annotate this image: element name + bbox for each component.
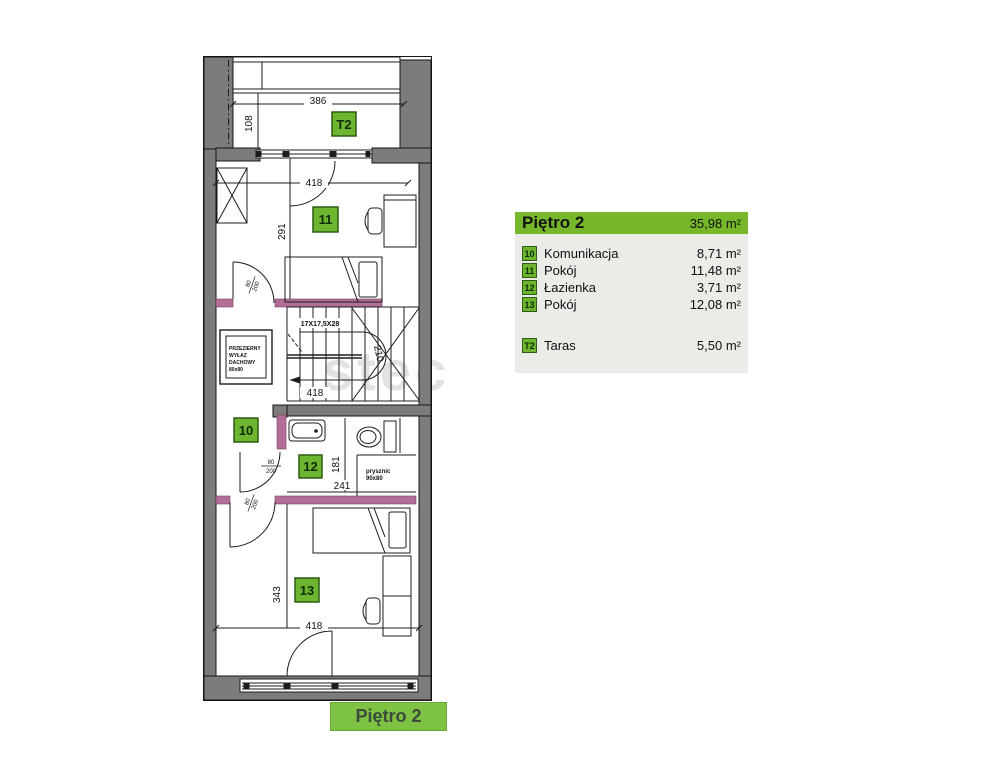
toilet-bowl <box>357 427 381 447</box>
partition-room11-left <box>216 299 233 307</box>
floor-plan: 386 108 <box>0 0 989 765</box>
window-mullion <box>408 683 413 688</box>
wall-terrace-divider-right <box>372 148 431 163</box>
room-badges: T2 11 10 12 13 <box>234 112 356 602</box>
chair-room13 <box>363 598 380 624</box>
legend-row-room11: 11 Pokój 11,48 m² <box>522 262 741 279</box>
bottom-window <box>240 679 418 692</box>
window-mullion <box>283 152 289 157</box>
wall-top-right-block <box>400 60 431 150</box>
toilet <box>357 418 400 453</box>
legend-header: Piętro 2 35,98 m² <box>515 212 748 234</box>
door-height-label: 200 <box>251 498 260 510</box>
bed-frame <box>313 508 410 553</box>
bed-frame <box>285 257 382 302</box>
legend-name-12: Łazienka <box>544 280 596 295</box>
badge-room13-label: 13 <box>300 583 314 598</box>
badge-room12-label: 12 <box>303 459 317 474</box>
legend-name-11: Pokój <box>544 263 577 278</box>
bed-room11 <box>285 257 382 302</box>
shower-text-1: prysznic <box>366 469 391 475</box>
legend-row-room10: 10 Komunikacja 8,71 m² <box>522 245 741 262</box>
door-room11-swing <box>233 262 274 303</box>
sink <box>289 420 325 441</box>
roof-hatch-text-2: WYŁAZ <box>229 353 247 359</box>
door-label-bath: 80 200 <box>261 460 281 475</box>
balcony-door-swing <box>287 631 332 676</box>
door-width-label: 80 <box>268 460 275 466</box>
partition-bath-vertical <box>277 415 286 449</box>
legend-badge-13: 13 <box>522 297 537 312</box>
window-mullion <box>332 683 338 688</box>
door-label-room11: 80 200 <box>243 274 262 296</box>
desk-room11 <box>384 195 416 247</box>
partition-room13-right <box>275 496 416 504</box>
legend-row-room12: 12 Łazienka 3,71 m² <box>522 279 741 296</box>
partition-room13-left <box>216 496 230 504</box>
door-height-label: 200 <box>266 469 277 475</box>
legend-title: Piętro 2 <box>522 213 584 233</box>
toilet-cistern <box>384 421 396 452</box>
bed-pillow <box>359 262 377 297</box>
sink-drain <box>315 430 318 433</box>
legend-badge-11: 11 <box>522 263 537 278</box>
legend-name-t2: Taras <box>544 338 576 353</box>
badge-room11-label: 11 <box>319 212 333 227</box>
legend-area-13: 12,08 m² <box>690 297 741 312</box>
badge-room10-label: 10 <box>239 423 253 438</box>
bed-room13 <box>313 508 410 553</box>
stairs-spec-label: 17X17,5X28 <box>301 321 340 328</box>
chair-seat <box>366 598 380 624</box>
door-label-room13: 80 200 <box>242 492 261 514</box>
window-mullion <box>284 683 290 688</box>
door-height-label: 200 <box>252 280 261 292</box>
stairs-height-label: 210 <box>371 344 385 363</box>
legend-area-12: 3,71 m² <box>697 280 741 295</box>
wall-terrace-divider-left <box>216 148 260 161</box>
window-mullion <box>257 152 261 157</box>
desk-top <box>384 195 416 247</box>
window-mullion <box>330 152 336 157</box>
chair-seat <box>368 208 382 234</box>
legend-badge-12: 12 <box>522 280 537 295</box>
legend-area-10: 8,71 m² <box>697 246 741 261</box>
desk-room13 <box>383 556 411 636</box>
window-mullion <box>366 152 370 157</box>
bed-fold <box>342 257 358 302</box>
toilet-seat <box>360 431 376 444</box>
stair-walkline-arrow <box>291 377 300 383</box>
roof-hatch-text-4: 80x80 <box>229 367 243 373</box>
shower-text-2: 90x80 <box>366 476 383 482</box>
dim-room11-width: 418 <box>306 178 323 189</box>
badge-terrace-label: T2 <box>336 117 351 132</box>
window-mullion <box>244 683 249 688</box>
partition-room11-right <box>275 299 382 307</box>
legend-row-terrace: T2 Taras 5,50 m² <box>522 337 741 354</box>
stairs-run-label: 418 <box>307 388 324 399</box>
legend-badge-10: 10 <box>522 246 537 261</box>
dim-terrace-width: 386 <box>310 96 327 107</box>
legend-area-t2: 5,50 m² <box>697 338 741 353</box>
legend-area-11: 11,48 m² <box>691 263 741 278</box>
legend-card: Piętro 2 35,98 m² 10 Komunikacja 8,71 m²… <box>515 212 748 373</box>
roof-hatch-text-3: DACHOWY <box>229 360 256 366</box>
legend-total-area: 35,98 m² <box>690 216 741 231</box>
legend-name-13: Pokój <box>544 297 577 312</box>
terrace-roof-edge <box>233 57 400 62</box>
legend-rows: 10 Komunikacja 8,71 m² 11 Pokój 11,48 m²… <box>515 234 748 354</box>
roof-hatch-text-1: PRZEZIERNY <box>229 346 261 352</box>
chair-room11 <box>365 208 382 234</box>
bed-pillow <box>389 512 406 548</box>
wall-left <box>204 149 216 676</box>
dim-room13-depth: 343 <box>272 586 283 603</box>
legend-badge-t2: T2 <box>522 338 537 353</box>
legend-name-10: Komunikacja <box>544 246 618 261</box>
dim-room11-depth: 291 <box>277 223 288 240</box>
legend-row-room13: 13 Pokój 12,08 m² <box>522 296 741 313</box>
wall-stairs-bath <box>275 405 431 416</box>
terrace-window <box>256 150 372 158</box>
dim-terrace-depth: 108 <box>244 115 255 132</box>
dim-room13-width: 418 <box>306 621 323 632</box>
screenshot-root: { "watermark": "stec", "legend": { "titl… <box>0 0 989 765</box>
floor-caption: Piętro 2 <box>330 702 447 731</box>
dim-bath-depth: 181 <box>331 456 342 473</box>
dim-bath-width: 241 <box>334 481 351 492</box>
bed-fold <box>374 508 385 537</box>
